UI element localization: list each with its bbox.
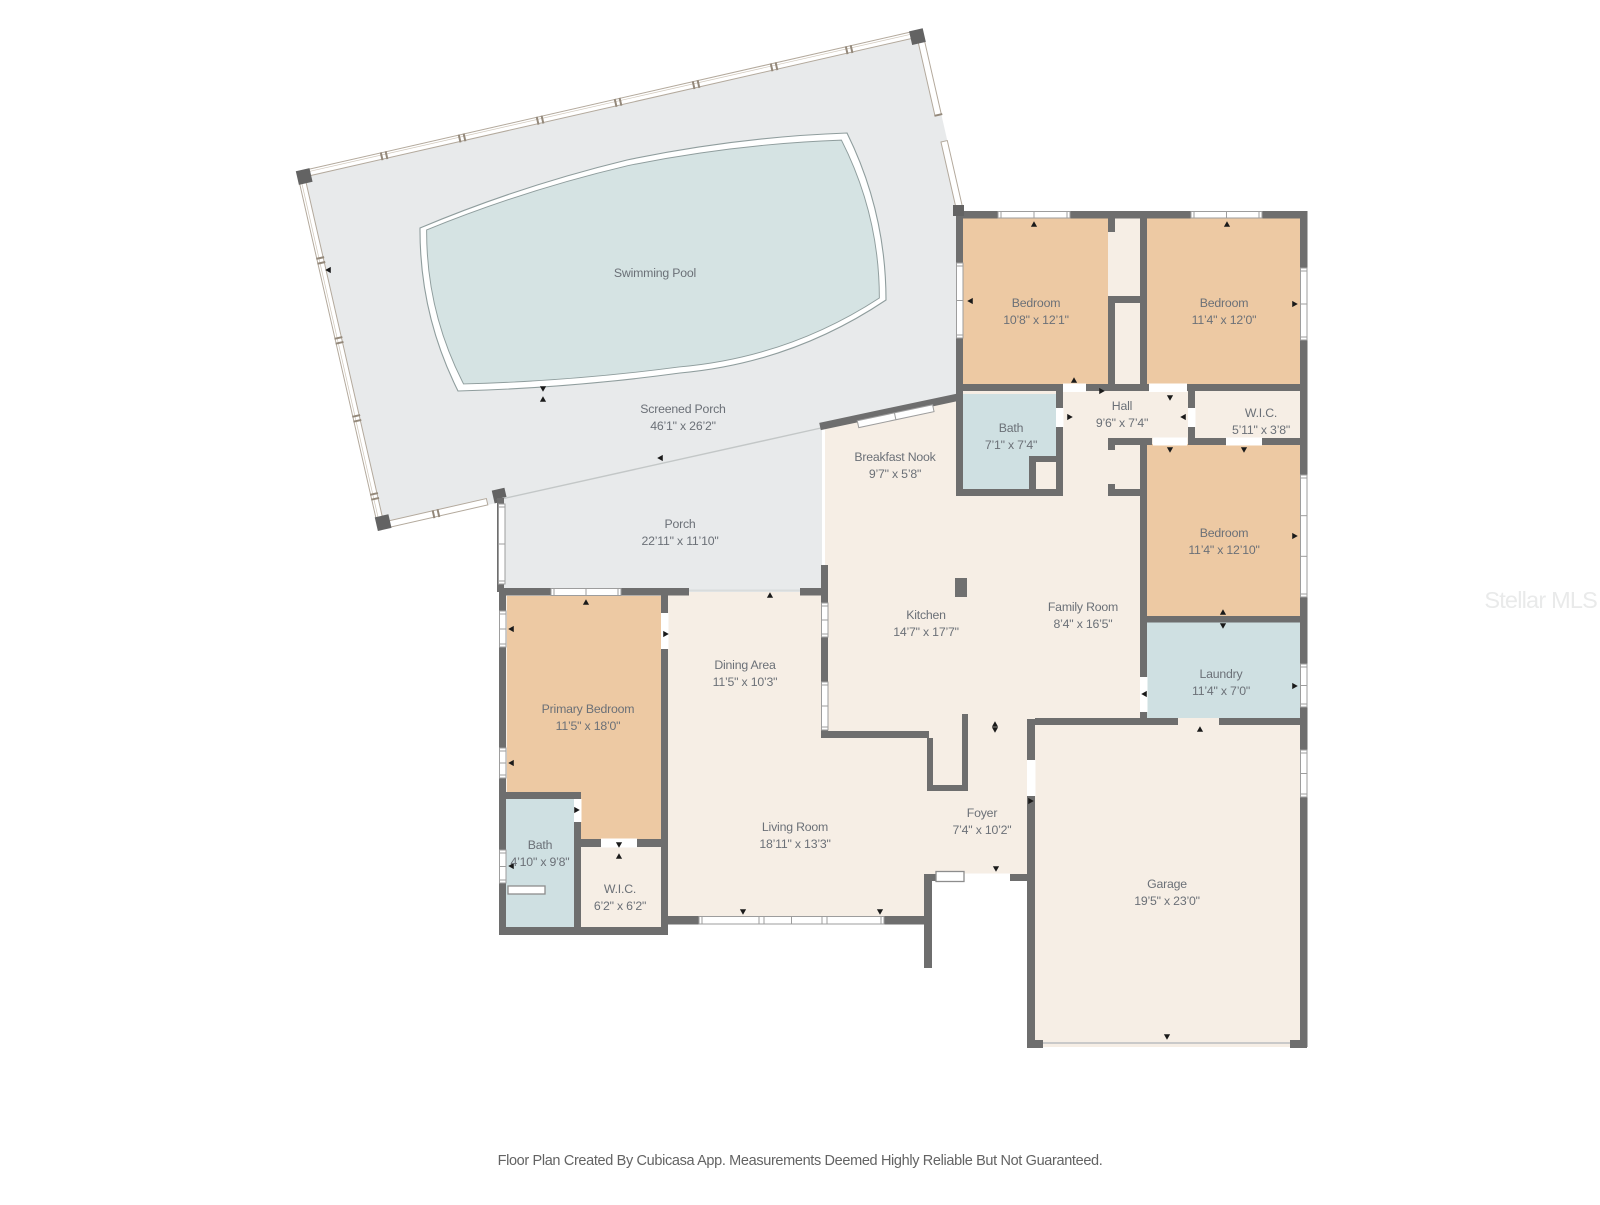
svg-text:Dining Area: Dining Area xyxy=(714,658,776,672)
svg-text:11’4" x 12’0": 11’4" x 12’0" xyxy=(1192,313,1257,327)
svg-text:46’1" x 26’2": 46’1" x 26’2" xyxy=(650,419,716,433)
svg-text:9’6" x 7’4": 9’6" x 7’4" xyxy=(1096,416,1148,430)
svg-text:Living Room: Living Room xyxy=(762,820,828,834)
svg-text:5’11" x 3’8": 5’11" x 3’8" xyxy=(1232,423,1290,437)
svg-text:Kitchen: Kitchen xyxy=(906,608,946,622)
svg-text:19’5" x 23’0": 19’5" x 23’0" xyxy=(1134,894,1200,908)
svg-text:Bedroom: Bedroom xyxy=(1200,296,1249,310)
svg-text:Bedroom: Bedroom xyxy=(1012,296,1061,310)
svg-text:Primary Bedroom: Primary Bedroom xyxy=(542,702,635,716)
svg-text:Family Room: Family Room xyxy=(1048,600,1118,614)
svg-text:7’1" x 7’4": 7’1" x 7’4" xyxy=(985,438,1037,452)
svg-text:10’8" x 12’1": 10’8" x 12’1" xyxy=(1003,313,1069,327)
svg-text:9’7" x 5’8": 9’7" x 5’8" xyxy=(869,467,921,481)
svg-text:22’11" x 11’10": 22’11" x 11’10" xyxy=(641,534,718,548)
svg-text:W.I.C.: W.I.C. xyxy=(604,882,636,896)
svg-text:Screened Porch: Screened Porch xyxy=(640,402,726,416)
svg-text:6’2" x 6’2": 6’2" x 6’2" xyxy=(594,899,646,913)
svg-text:7’4" x 10’2": 7’4" x 10’2" xyxy=(953,823,1012,837)
svg-text:11’5" x 18’0": 11’5" x 18’0" xyxy=(556,719,621,733)
svg-text:Foyer: Foyer xyxy=(967,806,998,820)
svg-text:Swimming Pool: Swimming Pool xyxy=(614,266,696,280)
svg-text:Bath: Bath xyxy=(999,421,1024,435)
svg-text:Bath: Bath xyxy=(528,838,553,852)
svg-text:Hall: Hall xyxy=(1112,399,1132,413)
svg-text:Laundry: Laundry xyxy=(1199,667,1243,681)
svg-text:14’7" x 17’7": 14’7" x 17’7" xyxy=(893,625,959,639)
svg-text:Bedroom: Bedroom xyxy=(1200,526,1249,540)
svg-text:11’4" x 7’0": 11’4" x 7’0" xyxy=(1192,684,1250,698)
svg-text:W.I.C.: W.I.C. xyxy=(1245,406,1277,420)
svg-text:Floor Plan Created By Cubicasa: Floor Plan Created By Cubicasa App. Meas… xyxy=(498,1153,1103,1169)
svg-text:Breakfast Nook: Breakfast Nook xyxy=(854,450,936,464)
svg-text:Stellar MLS: Stellar MLS xyxy=(1484,587,1597,613)
svg-text:8’4" x 16’5": 8’4" x 16’5" xyxy=(1054,617,1113,631)
svg-text:4’10" x 9’8": 4’10" x 9’8" xyxy=(511,855,570,869)
svg-text:Garage: Garage xyxy=(1147,877,1187,891)
svg-text:11’4" x 12’10": 11’4" x 12’10" xyxy=(1188,543,1259,557)
svg-text:Porch: Porch xyxy=(664,517,695,531)
svg-text:11’5" x 10’3": 11’5" x 10’3" xyxy=(713,675,778,689)
svg-text:18’11" x 13’3": 18’11" x 13’3" xyxy=(759,837,830,851)
